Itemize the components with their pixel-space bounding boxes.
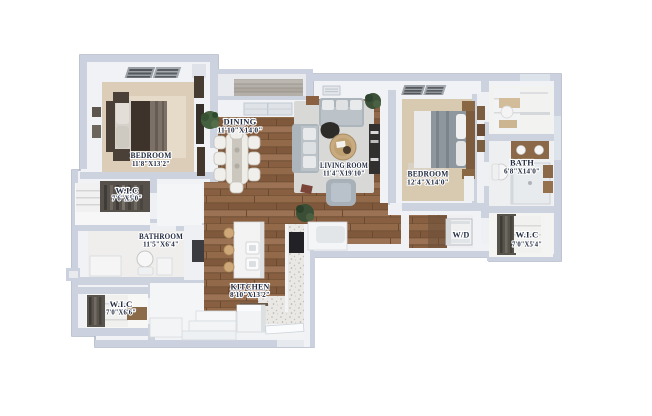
svg-text:8'10"X13'2": 8'10"X13'2" [230, 290, 270, 299]
svg-text:7'6"X5'0": 7'6"X5'0" [112, 194, 142, 203]
svg-text:W/D: W/D [453, 230, 470, 240]
svg-text:11'10"X14'0": 11'10"X14'0" [218, 126, 263, 135]
svg-text:11'8"X13'2": 11'8"X13'2" [132, 159, 170, 168]
svg-text:W.I.C: W.I.C [516, 230, 539, 240]
svg-text:11'4"X19'10": 11'4"X19'10" [323, 169, 365, 178]
svg-text:12'4"X14'0": 12'4"X14'0" [407, 178, 449, 187]
svg-text:7'0"X6'6": 7'0"X6'6" [106, 308, 136, 317]
svg-text:6'8"X14'0": 6'8"X14'0" [504, 167, 540, 176]
svg-text:11'5"X6'4": 11'5"X6'4" [143, 240, 179, 249]
svg-text:7'0"X5'4": 7'0"X5'4" [512, 240, 542, 249]
